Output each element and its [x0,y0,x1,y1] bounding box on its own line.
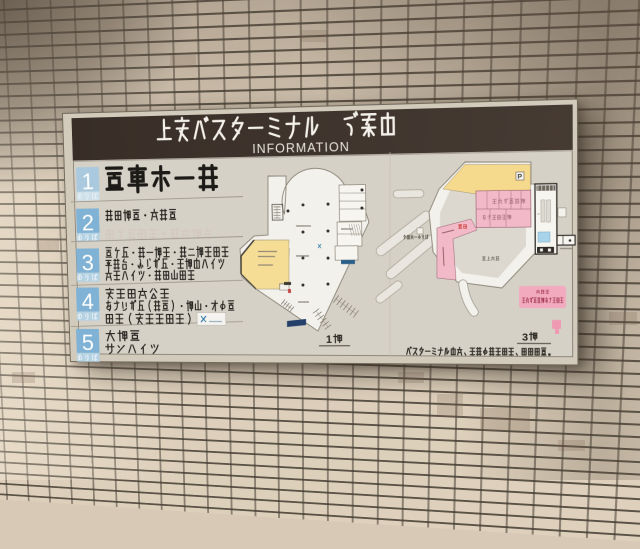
svg-text:INFORMATION: INFORMATION [252,139,350,156]
svg-text:P: P [517,173,522,181]
svg-text:4: 4 [81,289,94,314]
svg-text:5: 5 [81,330,94,355]
svg-text:1: 1 [81,168,94,194]
svg-text:1: 1 [326,334,332,346]
svg-text:2: 2 [81,210,94,236]
svg-text:3: 3 [81,250,94,275]
svg-text:3: 3 [522,332,529,344]
